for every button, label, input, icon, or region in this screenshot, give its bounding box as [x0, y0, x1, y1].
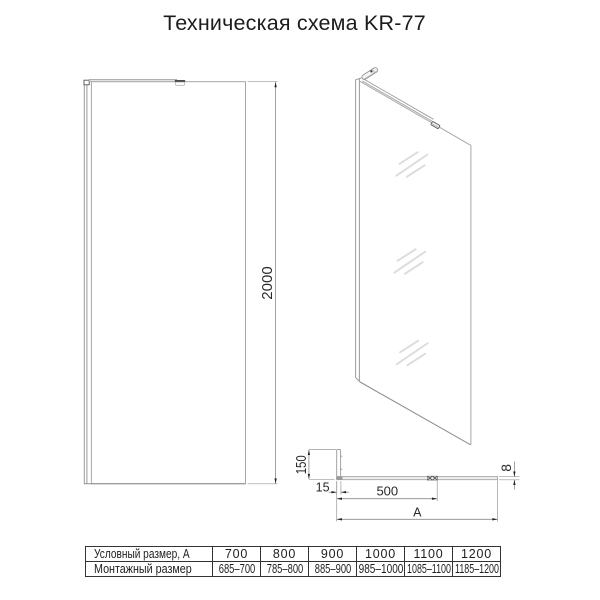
svg-text:8: 8: [498, 464, 514, 472]
svg-text:150: 150: [292, 455, 309, 474]
svg-text:2000: 2000: [259, 266, 276, 299]
svg-text:500: 500: [376, 483, 398, 498]
svg-text:15: 15: [316, 481, 330, 495]
svg-text:A: A: [413, 506, 422, 520]
